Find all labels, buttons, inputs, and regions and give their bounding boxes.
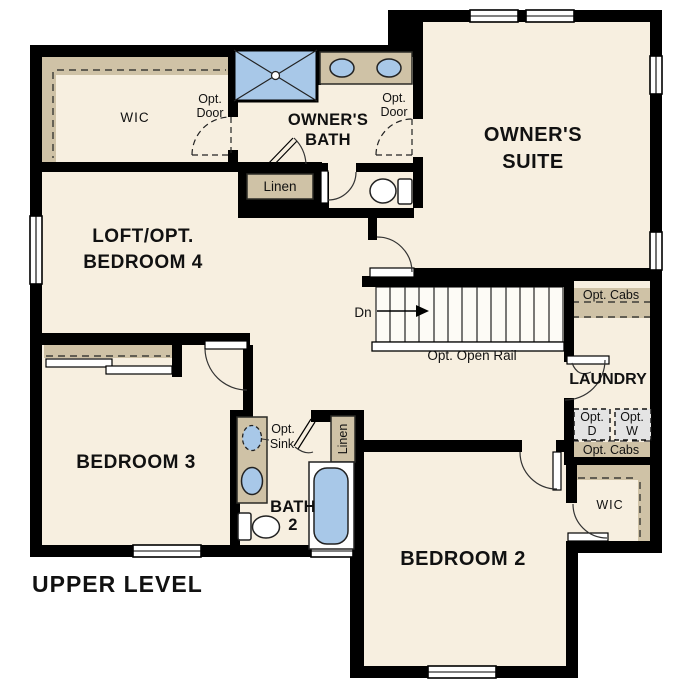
linen2-label: Linen [336, 424, 350, 455]
dryer-opt-label: Opt. [580, 410, 604, 424]
wic-lower-label: WIC [596, 498, 623, 512]
stair-run [376, 287, 563, 342]
suite-right-window-2 [650, 232, 662, 270]
washer-label: W [626, 424, 638, 438]
laundry-label: LAUNDRY [569, 371, 647, 388]
staircase [372, 287, 564, 351]
loft-label-2: BEDROOM 4 [83, 252, 203, 273]
owners-bath-label-2: BATH [305, 131, 351, 149]
bath2-optional-sink [243, 426, 262, 451]
bath2-sink [242, 468, 263, 495]
bath2-toilet [238, 513, 280, 540]
wic-opt-label: Opt. [198, 92, 222, 106]
loft-label-1: LOFT/OPT. [92, 226, 194, 247]
bedroom2-window [428, 666, 496, 678]
wic-left-shelf [42, 57, 56, 162]
stairs-dn-label: Dn [354, 305, 371, 320]
page-title: UPPER LEVEL [32, 571, 203, 597]
bedroom3-label: BEDROOM 3 [76, 452, 196, 473]
wic-door-label: Door [196, 106, 223, 120]
wic2-door-leaf [568, 533, 608, 541]
loft-left-window [30, 216, 42, 284]
wic-top-shelf [42, 57, 228, 75]
shower [234, 50, 317, 101]
dryer-label: D [587, 424, 596, 438]
wic-upper-label: WIC [120, 110, 149, 125]
bath2-label-1: BATH [270, 498, 316, 516]
bedroom2-door-leaf [553, 452, 561, 490]
floor-plan-page: WIC Opt. Door OWNER'S BATH Opt. Door OWN… [0, 0, 687, 687]
linen1-label: Linen [263, 179, 296, 194]
suite-right-window-1 [650, 56, 662, 94]
suite-top-window-2 [526, 10, 574, 22]
bedroom3-window [133, 545, 201, 557]
shower-drain [272, 72, 280, 80]
open-rail-label: Opt. Open Rail [427, 348, 516, 363]
opt-sink-label-1: Opt. [271, 422, 295, 436]
suite-opt-label: Opt. [382, 91, 406, 105]
suite-entry-threshold [370, 268, 414, 277]
washer-opt-label: Opt. [620, 410, 644, 424]
bedroom2-label: BEDROOM 2 [400, 548, 526, 570]
opt-sink-label-2: Sink [270, 437, 295, 451]
owners-vanity-sink-1 [330, 59, 354, 77]
suite-top-window-1 [470, 10, 518, 22]
owners-suite-label-2: SUITE [502, 151, 563, 173]
bedroom3-door-leaf [205, 341, 247, 349]
opt-cabs-lower-label: Opt. Cabs [583, 443, 639, 457]
floor-plan-canvas: WIC Opt. Door OWNER'S BATH Opt. Door OWN… [0, 0, 687, 687]
toilet-room-door-leaf [321, 171, 328, 203]
bath2-label-2: 2 [288, 516, 297, 534]
owners-vanity-sink-2 [377, 59, 401, 77]
owners-bath-label-1: OWNER'S [288, 111, 368, 129]
suite-door-label: Door [380, 105, 407, 119]
owners-toilet [370, 179, 412, 204]
laundry-door-leaf [567, 356, 609, 364]
opt-cabs-upper-label: Opt. Cabs [583, 288, 639, 302]
wic2-right-shelf [638, 465, 650, 541]
owners-suite-label-1: OWNER'S [484, 124, 582, 146]
